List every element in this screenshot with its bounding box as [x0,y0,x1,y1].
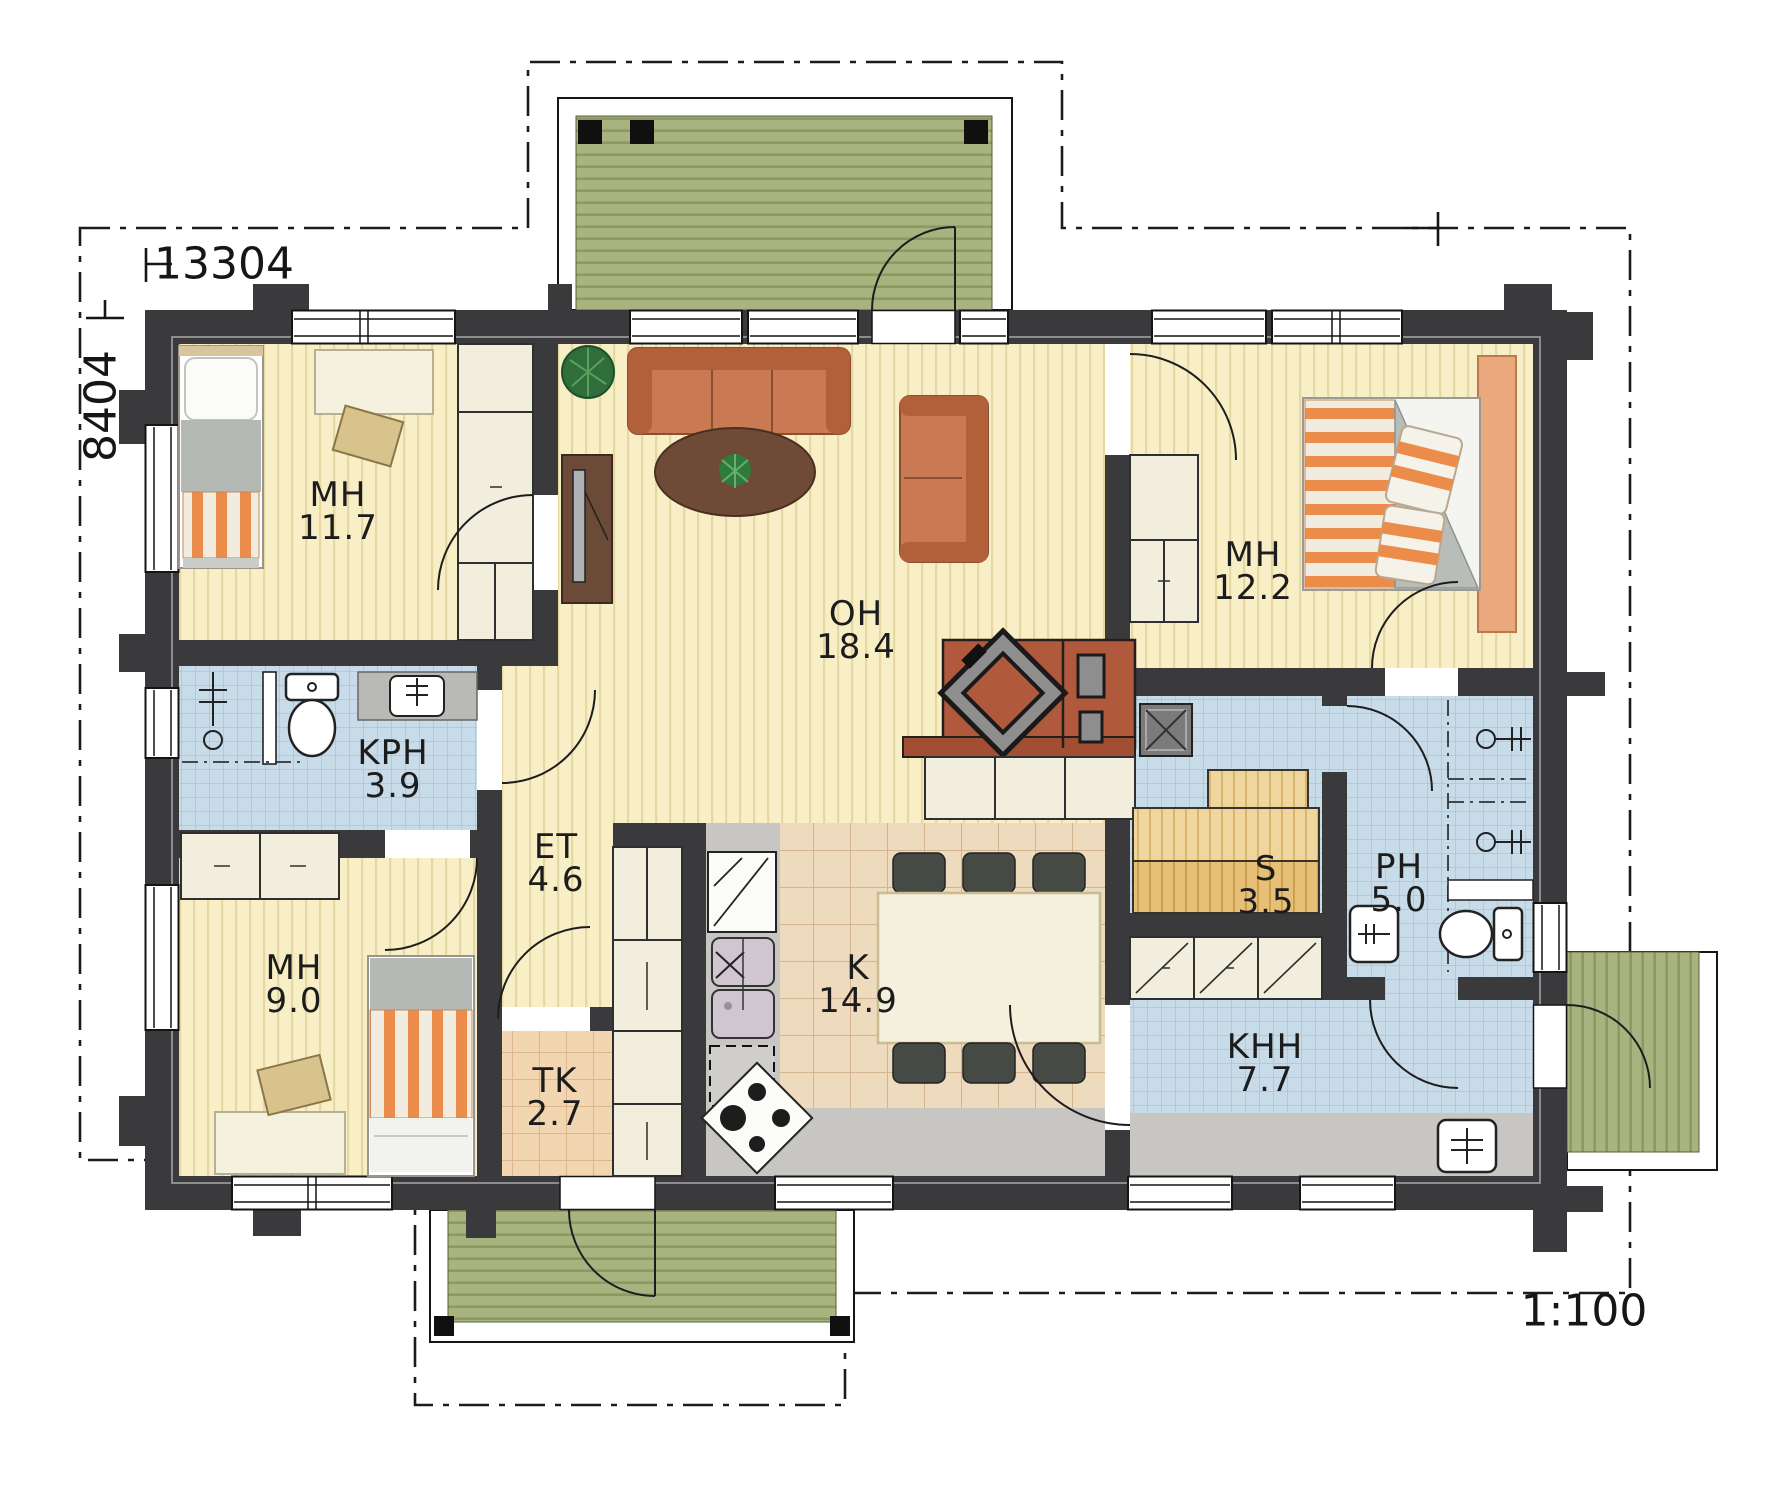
dining-table [878,893,1100,1043]
deck-post [964,120,988,144]
dishwasher [708,852,776,932]
window [1534,903,1567,972]
room-label-kph-3-9: KPH3.9 [357,737,428,803]
floor-plan-drawing [0,0,1768,1500]
window [146,688,179,758]
window [1128,1177,1232,1210]
sink-icon [1438,1120,1496,1172]
chair [893,1043,945,1083]
dresser [181,833,339,899]
wardrobe [458,344,533,640]
window [775,1177,893,1210]
closets [1130,455,1198,622]
sofa-small [900,396,988,562]
chair [1033,1043,1085,1083]
window [748,311,858,344]
sink-icon [390,676,444,716]
room-label-ph-5-0: PH5.0 [1370,851,1427,917]
utility-closets [1130,937,1322,999]
coffee-table [655,428,815,516]
bench [1448,880,1533,900]
side-door-opening [1534,1005,1567,1088]
chair [963,1043,1015,1083]
dining-set [878,853,1100,1083]
room-label-mh-9-0: MH9.0 [265,952,322,1018]
porch-post [434,1316,454,1336]
room-label-tk-2-7: TK2.7 [526,1065,583,1131]
window [1300,1177,1395,1210]
sofa-large [628,348,850,434]
window [1272,311,1402,344]
pillow [1375,505,1446,585]
window [292,311,455,344]
floor-plan: MH11.7 OH18.4 MH12.2 KPH3.9 ET4.6 MH9.0 … [0,0,1768,1500]
plant-icon [562,346,614,398]
porch-door-opening [560,1177,655,1210]
window [146,885,179,1030]
utility-room-fixtures [1438,1120,1496,1172]
room-label-mh-12-2: MH12.2 [1213,539,1293,605]
terrace-deck [558,98,1012,310]
hall-closets [613,847,682,1176]
room-label-mh-11-7: MH11.7 [298,479,378,545]
room-label-s-3-5: S3.5 [1237,853,1294,919]
window [630,311,742,344]
tv-stand [562,455,612,603]
room-label-et-4-6: ET4.6 [527,831,584,897]
deck-post [578,120,602,144]
deck-post [630,120,654,144]
scale-label: 1:100 [1521,1286,1648,1337]
sauna-heater-icon [1140,704,1192,756]
kitchen-island-cabinets [925,757,1135,819]
window [1152,311,1266,344]
dimension-width: 13304 [154,239,294,290]
window [960,311,1008,344]
toilet-icon [286,674,338,756]
chair [963,853,1015,893]
single-bed [368,956,474,1176]
shower-partition [263,672,276,764]
double-bed [1303,356,1516,632]
window [232,1177,392,1210]
room-label-k-14-9: K14.9 [818,952,898,1018]
room-khh-floor [1130,1000,1533,1113]
porch-post [830,1316,850,1336]
room-label-khh-7-7: KHH7.7 [1227,1031,1303,1097]
deck-door-opening [872,311,955,344]
single-bed [179,346,263,568]
toilet-icon [1440,908,1522,960]
room-label-oh-18-4: OH18.4 [816,598,896,664]
chair [893,853,945,893]
window [146,425,179,572]
dimension-height: 8404 [76,350,127,462]
chair [1033,853,1085,893]
side-porch [1567,952,1717,1170]
